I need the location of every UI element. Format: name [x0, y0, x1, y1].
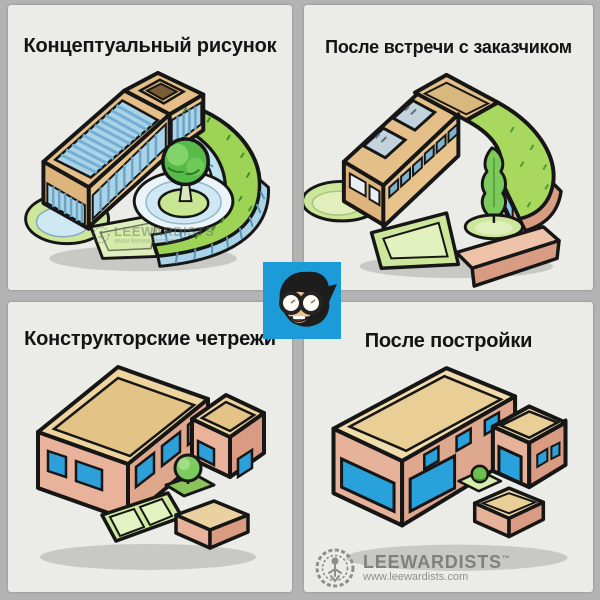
mascot-avatar [263, 262, 341, 339]
footer-brand-name: LEEWARDISTS™ [363, 553, 511, 572]
mascot-face-icon [263, 262, 341, 339]
low-box-building [176, 501, 248, 548]
comic-page: { "panels": [ {"title": "Концептуальный … [0, 0, 600, 600]
tiny-plain-box [475, 488, 544, 536]
client-building-illustration [304, 63, 593, 290]
drawings-building-illustration [8, 356, 292, 588]
medium-plain-box [493, 406, 566, 487]
shadow [40, 544, 256, 570]
panel-after-client: После встречи с заказчиком [304, 5, 593, 290]
leewardists-logo-icon [314, 547, 356, 589]
panel-built-title: После постройки [304, 330, 593, 353]
client-main-building [344, 75, 561, 241]
trademark-symbol: ™ [502, 554, 511, 563]
panel-construction-drawings: Конструкторские четрежи [8, 302, 292, 592]
concept-building-illustration [8, 63, 292, 290]
panel-concept-title: Концептуальный рисунок [8, 35, 292, 58]
big-box-building [38, 367, 208, 520]
footer-brand: LEEWARDISTS™ www.leewardists.com [314, 546, 511, 590]
panel-client-title: После встречи с заказчиком [304, 37, 593, 58]
panel-draw-title: Конструкторские четрежи [8, 328, 292, 351]
panel-concept-sketch: Концептуальный рисунок [8, 5, 292, 290]
footer-url: www.leewardists.com [363, 572, 511, 584]
